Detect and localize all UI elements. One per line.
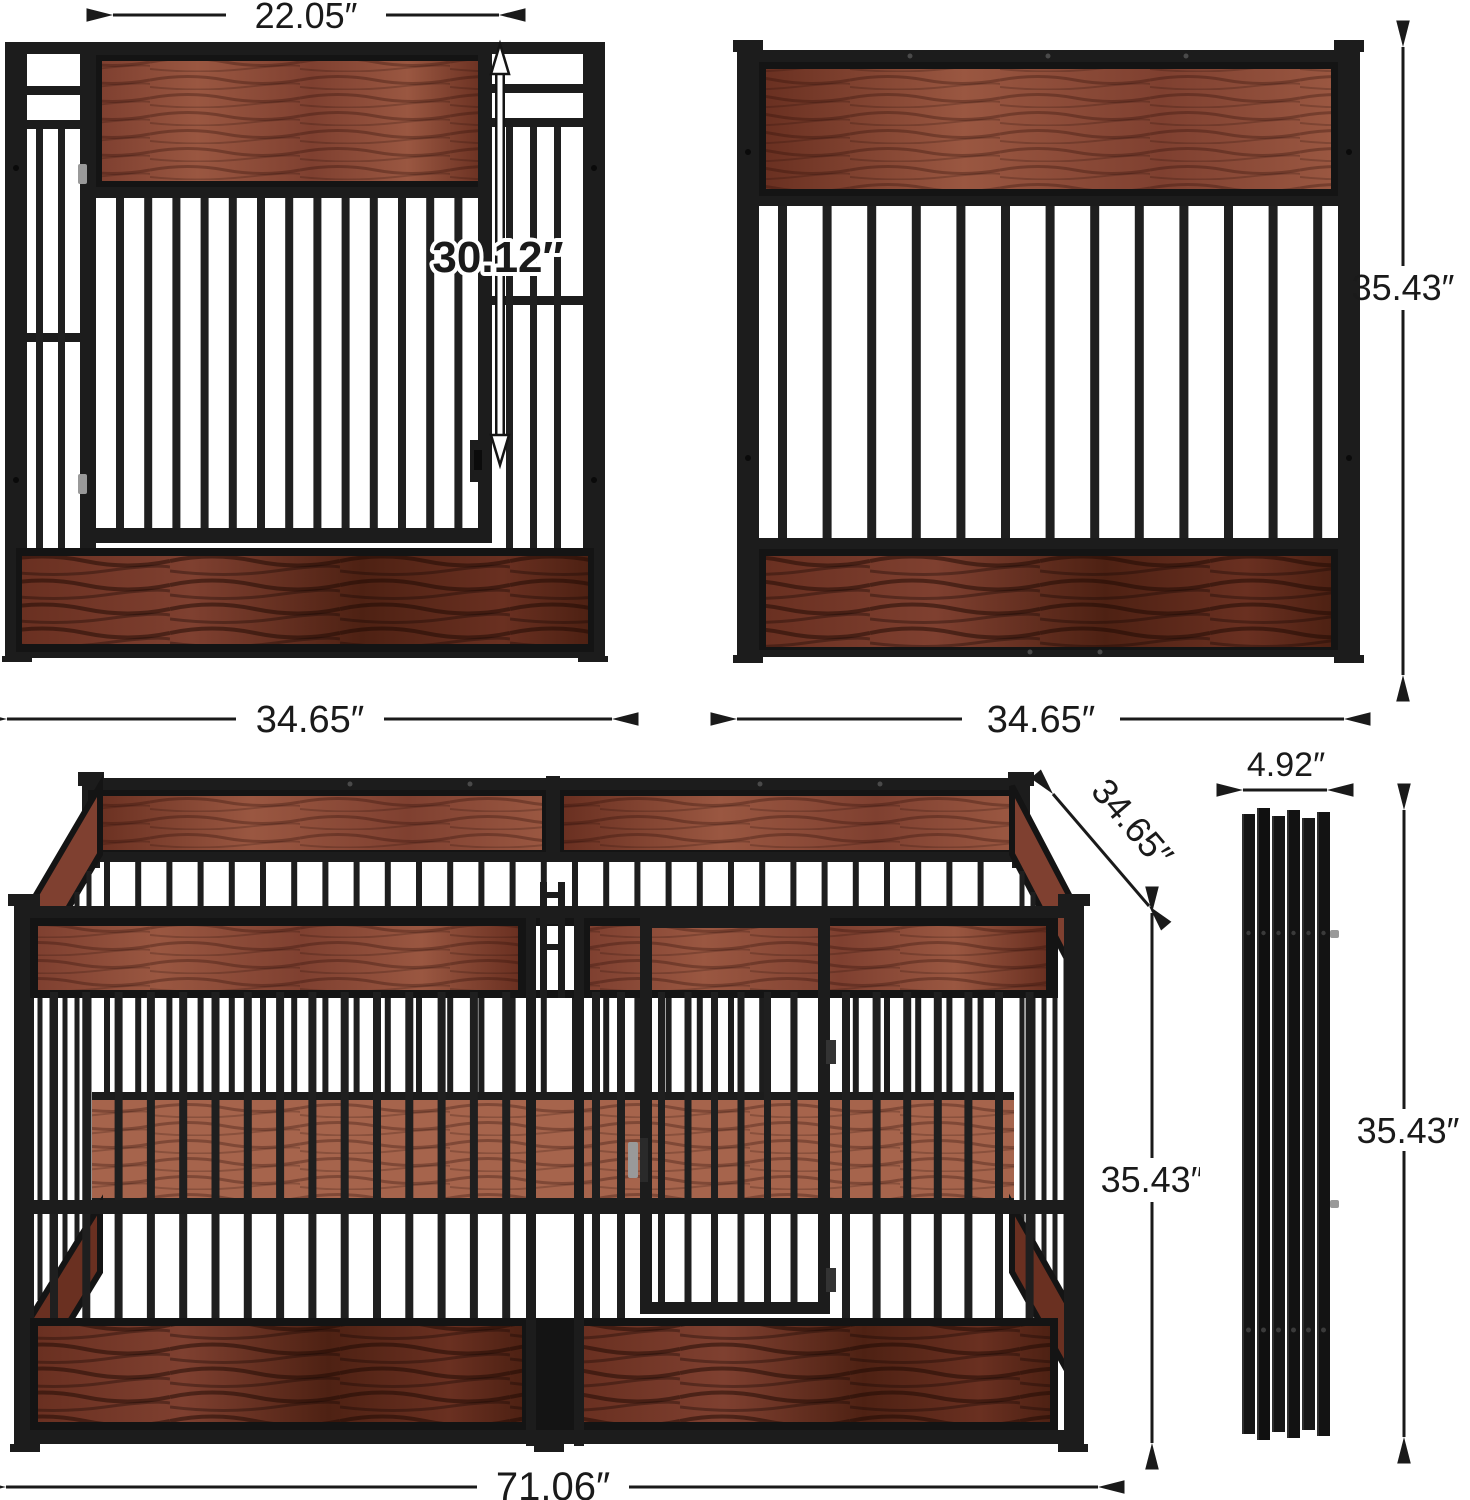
bar xyxy=(867,206,876,540)
bar xyxy=(956,206,965,540)
bar xyxy=(116,198,124,528)
center-joint-post xyxy=(526,906,536,1446)
bar xyxy=(1135,206,1144,540)
center-joint-post xyxy=(574,906,584,1446)
door-hinge xyxy=(78,164,87,184)
bar xyxy=(738,992,745,1302)
bar xyxy=(1090,206,1099,540)
front-panel-right-section xyxy=(492,84,583,552)
bar xyxy=(502,992,510,1330)
dimension-label: 30.12″ xyxy=(432,233,563,282)
crate-door[interactable] xyxy=(96,42,492,543)
pen-door-hinge xyxy=(826,1268,836,1292)
door-width-dimension: 22.05″ xyxy=(113,0,499,36)
front-panel-bottom-plank xyxy=(16,548,594,652)
bar xyxy=(398,198,406,528)
bar xyxy=(201,198,209,528)
dimension-label: 34.65″ xyxy=(1084,770,1182,875)
bar xyxy=(244,992,252,1330)
dimension-label: 35.43″ xyxy=(1357,1110,1460,1151)
dimension-label: 71.06″ xyxy=(496,1465,610,1500)
side-panel-view: 35.43″ 34.65″ xyxy=(700,0,1470,745)
bar xyxy=(964,992,972,1330)
bar xyxy=(1179,206,1188,540)
product-dimension-diagram: 22.05″ 30.12″ 34.65″ xyxy=(0,0,1470,1500)
pen-depth-dimension: 34.65″ xyxy=(1053,770,1182,906)
bar xyxy=(934,992,942,1330)
assembled-pen-view: 34.65″ 35.43″ 71.06″ xyxy=(0,740,1200,1500)
bar xyxy=(1269,206,1278,540)
bar xyxy=(873,992,881,1330)
bar xyxy=(617,992,625,1330)
side-panel-bars xyxy=(778,206,1322,540)
dimension-label: 4.92″ xyxy=(1247,746,1325,784)
bar xyxy=(341,992,349,1330)
bar xyxy=(791,992,798,1302)
pen-front-bars-left xyxy=(50,992,510,1330)
pen-bottom-plank xyxy=(30,1318,1058,1430)
bar xyxy=(1224,206,1233,540)
bar xyxy=(903,992,911,1330)
bar xyxy=(470,992,478,1330)
bar xyxy=(257,198,265,528)
bar xyxy=(313,198,321,528)
pen-door-hinge xyxy=(826,1040,836,1064)
bar xyxy=(285,198,293,528)
bar xyxy=(144,198,152,528)
pen-front-mid-rail xyxy=(14,1200,1084,1214)
door-latch[interactable] xyxy=(470,440,488,482)
dimension-label: 35.43″ xyxy=(1352,267,1455,308)
door-wood-plank xyxy=(102,61,484,181)
dimension-label: 34.65″ xyxy=(987,699,1096,741)
front-panel-width-dimension: 34.65″ xyxy=(7,699,612,741)
bar xyxy=(147,992,155,1330)
bar xyxy=(50,992,58,1330)
bar xyxy=(711,992,718,1302)
bar xyxy=(764,992,771,1302)
bar xyxy=(658,992,665,1302)
folded-panels-view: 4.92″ 35.43″ xyxy=(1200,740,1470,1500)
bar xyxy=(229,198,237,528)
stack-hinge-pin xyxy=(1330,1200,1339,1208)
bar xyxy=(1313,206,1322,540)
bar xyxy=(995,992,1003,1330)
side-panel-bottom-plank xyxy=(759,549,1338,654)
bar xyxy=(1001,206,1010,540)
pen-height-dimension: 35.43″ xyxy=(1101,913,1200,1443)
pen-door-latch[interactable] xyxy=(628,1138,648,1182)
bar xyxy=(1046,206,1055,540)
bar xyxy=(823,206,832,540)
door-bars xyxy=(116,198,462,528)
bar xyxy=(342,198,350,528)
dimension-label: 35.43″ xyxy=(1101,1159,1200,1200)
bar xyxy=(179,992,187,1330)
bar xyxy=(115,992,123,1330)
bar xyxy=(685,992,692,1302)
bar xyxy=(842,992,850,1330)
folded-panel-stack xyxy=(1242,808,1339,1440)
bar xyxy=(308,992,316,1330)
side-panel-width-dimension: 34.65″ xyxy=(737,699,1344,741)
folded-width-dimension: 4.92″ xyxy=(1243,746,1327,790)
bar xyxy=(172,198,180,528)
bar xyxy=(370,198,378,528)
bar xyxy=(405,992,413,1330)
dimension-label: 34.65″ xyxy=(256,699,365,741)
side-panel-feet xyxy=(733,650,1364,663)
bar xyxy=(438,992,446,1330)
front-panel-view: 22.05″ 30.12″ 34.65″ xyxy=(0,0,660,745)
side-panel-top-plank xyxy=(759,62,1338,196)
bar xyxy=(276,992,284,1330)
door-hinge xyxy=(78,474,87,494)
bar xyxy=(373,992,381,1330)
dimension-label: 22.05″ xyxy=(255,0,358,36)
folded-height-dimension: 35.43″ xyxy=(1357,810,1460,1437)
front-panel-left-section xyxy=(27,42,96,558)
bar xyxy=(82,992,90,1330)
bar xyxy=(592,992,600,1330)
side-panel-height-dimension: 35.43″ xyxy=(1352,47,1455,675)
bar xyxy=(212,992,220,1330)
bar xyxy=(778,206,787,540)
stack-hinge-pin xyxy=(1330,930,1339,938)
bar xyxy=(1026,992,1034,1330)
pen-length-dimension: 71.06″ xyxy=(6,1465,1098,1500)
bar xyxy=(912,206,921,540)
